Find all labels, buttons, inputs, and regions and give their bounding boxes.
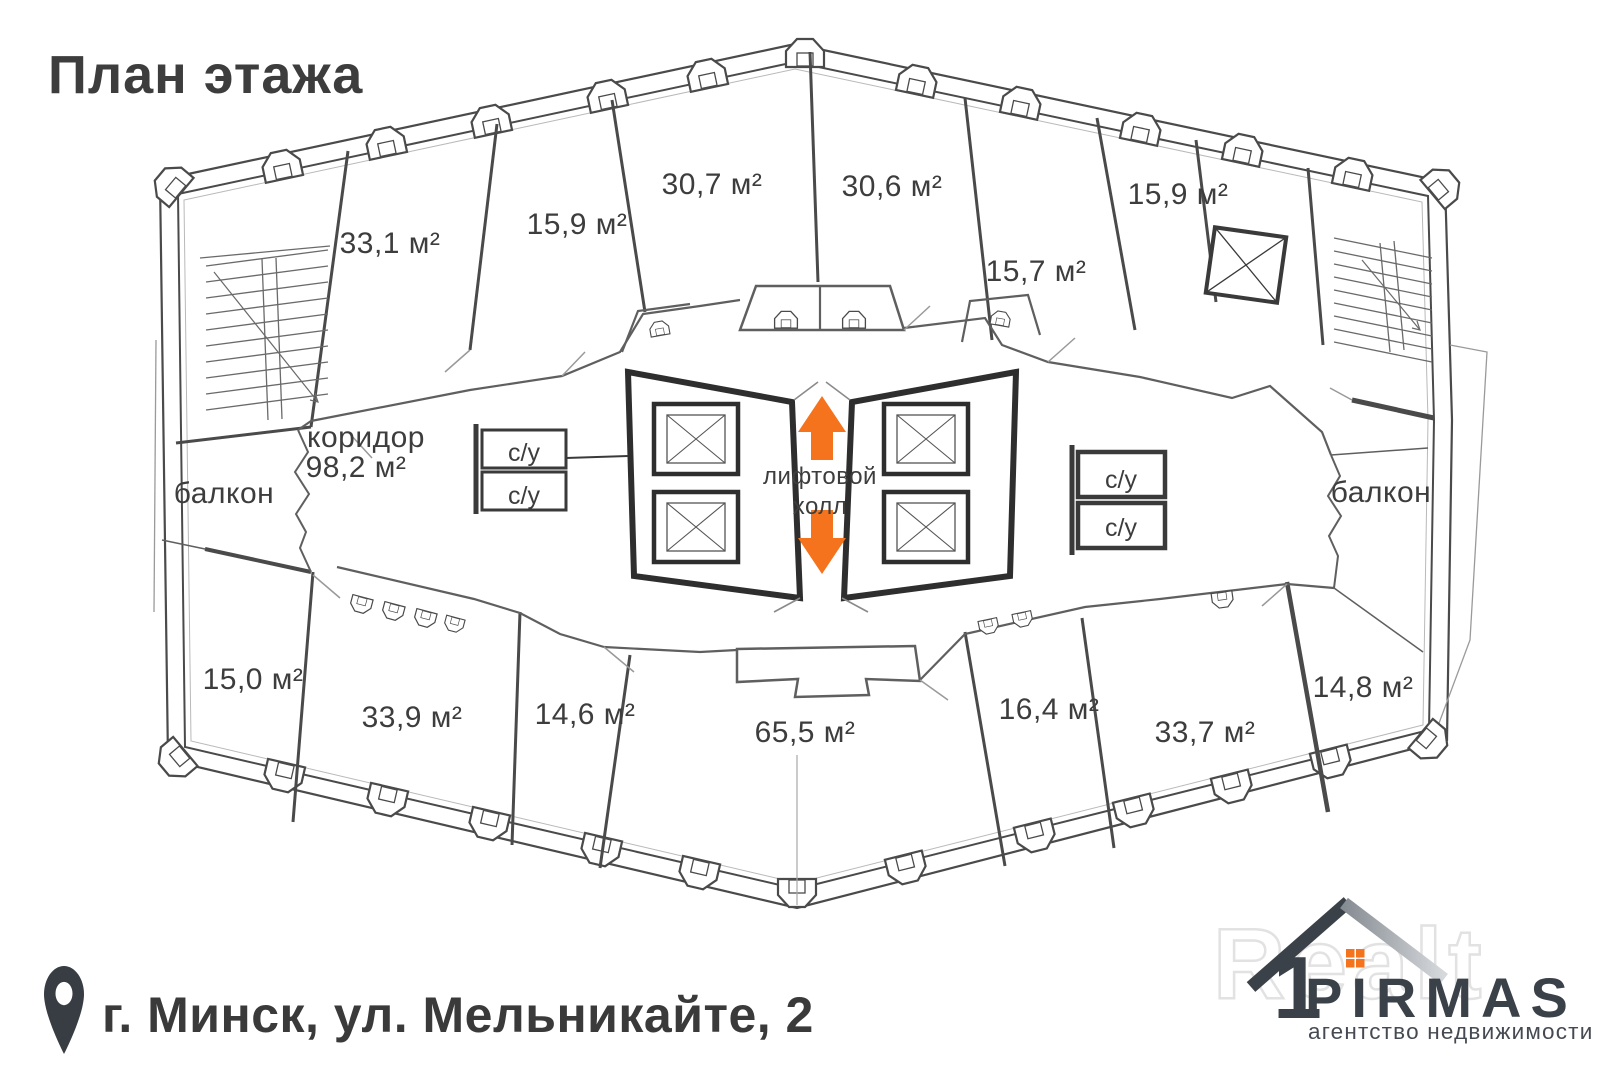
bathroom-label: с/у <box>1105 466 1137 494</box>
bathroom-label: с/у <box>508 482 540 510</box>
room-area-label: 15,9 м² <box>1128 178 1229 211</box>
room-area-label: 15,9 м² <box>527 208 628 241</box>
corridor-label: коридор <box>307 421 425 454</box>
room-area-label: 15,0 м² <box>203 663 304 696</box>
room-area-label: 33,9 м² <box>362 701 463 734</box>
agency-logo: Realt 1 PIRMAS агентство недвижимости <box>1165 855 1615 1055</box>
room-area-label: 33,7 м² <box>1155 716 1256 749</box>
elevator-shaft <box>884 492 968 562</box>
room-area-label: 30,7 м² <box>662 168 763 201</box>
elevator-shaft <box>654 404 738 474</box>
room-area-label: 33,1 м² <box>340 227 441 260</box>
brand-tagline: агентство недвижимости <box>1308 1019 1593 1044</box>
room-area-label: 30,6 м² <box>842 170 943 203</box>
bathroom-label: с/у <box>1105 514 1137 542</box>
page: План этажа <box>0 0 1620 1080</box>
shaft-box <box>1206 227 1286 302</box>
elevator-shaft <box>654 492 738 562</box>
location-pin-icon <box>44 966 84 1054</box>
bathroom-label: с/у <box>508 439 540 467</box>
room-area-label: 15,7 м² <box>986 255 1087 288</box>
room-area-label: 16,4 м² <box>999 693 1100 726</box>
elevator-shaft <box>884 404 968 474</box>
room-area-label: 14,6 м² <box>535 698 636 731</box>
room-area-label: 14,8 м² <box>1313 671 1414 704</box>
elevator-hall-label: холл <box>793 493 848 520</box>
address-text: г. Минск, ул. Мельникайте, 2 <box>102 986 814 1044</box>
corridor-area-label: 98,2 м² <box>306 451 407 484</box>
balcony-right-label: балкон <box>1331 476 1431 509</box>
balcony-left-label: балкон <box>174 477 274 510</box>
elevator-hall-label: лифтовой <box>763 463 877 490</box>
room-area-label: 65,5 м² <box>755 716 856 749</box>
